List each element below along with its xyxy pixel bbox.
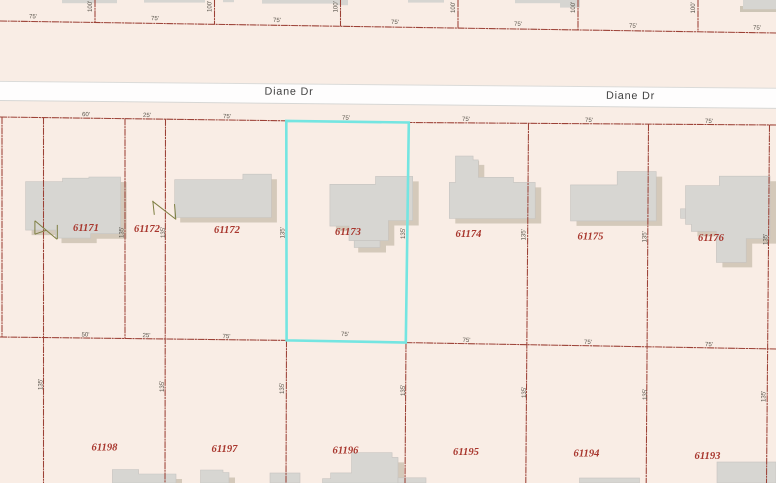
- svg-text:50': 50': [81, 331, 89, 338]
- svg-text:135': 135': [400, 385, 407, 396]
- svg-text:75': 75': [341, 331, 349, 338]
- svg-text:61173: 61173: [335, 227, 362, 238]
- svg-text:135': 135': [761, 391, 768, 402]
- svg-text:135': 135': [642, 231, 649, 242]
- svg-text:135': 135': [159, 381, 166, 392]
- svg-text:135': 135': [279, 383, 286, 394]
- svg-text:135': 135': [521, 229, 528, 240]
- svg-text:100': 100': [333, 1, 340, 12]
- svg-text:25': 25': [143, 112, 151, 119]
- svg-text:75': 75': [222, 333, 230, 340]
- svg-text:61198: 61198: [92, 443, 119, 454]
- svg-text:135': 135': [521, 387, 528, 398]
- svg-text:75': 75': [629, 23, 637, 30]
- svg-text:100': 100': [87, 1, 94, 12]
- svg-text:75': 75': [151, 15, 159, 22]
- svg-text:75': 75': [705, 118, 713, 125]
- svg-text:75': 75': [705, 341, 713, 348]
- svg-text:Diane Dr: Diane Dr: [264, 86, 313, 98]
- svg-text:61171: 61171: [73, 223, 99, 234]
- svg-text:Diane Dr: Diane Dr: [606, 90, 655, 102]
- svg-text:60': 60': [82, 111, 90, 118]
- svg-text:135': 135': [119, 227, 126, 238]
- svg-text:61175: 61175: [578, 232, 605, 243]
- svg-text:100': 100': [690, 2, 697, 13]
- svg-text:135': 135': [280, 227, 287, 238]
- svg-text:61176: 61176: [698, 233, 725, 244]
- svg-text:75': 75': [223, 113, 231, 120]
- svg-text:61197: 61197: [212, 444, 239, 455]
- svg-text:100': 100': [450, 2, 457, 13]
- svg-text:100': 100': [207, 1, 214, 12]
- svg-text:75': 75': [514, 21, 522, 28]
- svg-text:75': 75': [584, 339, 592, 346]
- svg-text:135': 135': [160, 227, 167, 238]
- svg-text:61172: 61172: [134, 224, 161, 235]
- svg-text:135': 135': [38, 379, 45, 390]
- svg-text:75': 75': [462, 116, 470, 123]
- svg-text:75': 75': [273, 17, 281, 24]
- svg-text:61172: 61172: [214, 225, 241, 236]
- svg-text:61193: 61193: [695, 451, 722, 462]
- svg-text:135': 135': [400, 228, 407, 239]
- svg-text:61174: 61174: [456, 229, 482, 240]
- svg-text:75': 75': [29, 13, 37, 20]
- svg-text:135': 135': [642, 389, 649, 400]
- svg-text:75': 75': [391, 19, 399, 26]
- svg-text:75': 75': [342, 115, 350, 122]
- svg-text:75': 75': [462, 337, 470, 344]
- svg-text:61194: 61194: [574, 449, 600, 460]
- svg-text:135': 135': [763, 234, 770, 245]
- svg-text:61196: 61196: [333, 446, 360, 457]
- svg-text:100': 100': [570, 2, 577, 13]
- svg-text:75': 75': [585, 117, 593, 124]
- svg-text:61195: 61195: [453, 447, 480, 458]
- svg-text:25': 25': [142, 332, 150, 339]
- svg-text:75': 75': [753, 24, 761, 31]
